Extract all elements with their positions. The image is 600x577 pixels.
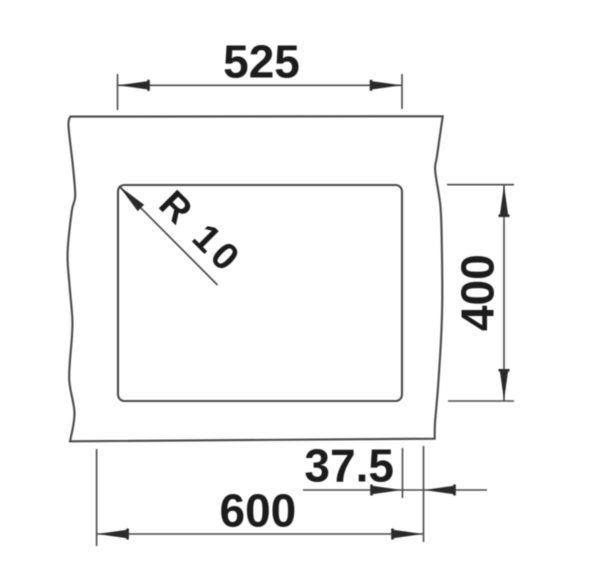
svg-text:600: 600 [220,485,297,537]
svg-text:37.5: 37.5 [304,440,394,492]
svg-text:525: 525 [223,36,300,88]
svg-text:400: 400 [452,254,504,331]
